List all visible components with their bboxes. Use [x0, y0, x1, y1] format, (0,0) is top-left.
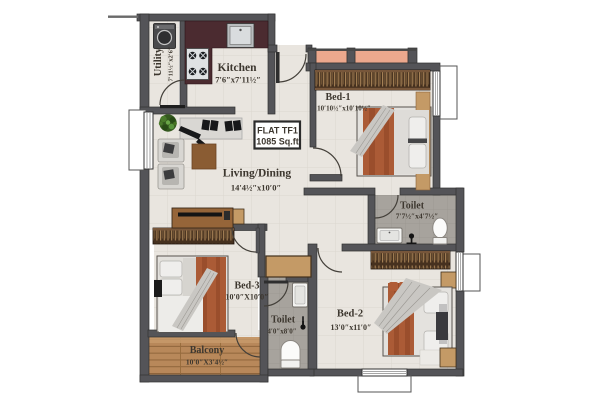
svg-text:Bed-2: Bed-2	[337, 309, 363, 320]
svg-text:7′7½″x4′7½″: 7′7½″x4′7½″	[396, 212, 439, 221]
svg-text:Toilet: Toilet	[271, 315, 296, 326]
svg-text:10′0″X3′4½″: 10′0″X3′4½″	[186, 358, 228, 367]
svg-text:Toilet: Toilet	[400, 201, 425, 212]
svg-text:1085 Sq.ft: 1085 Sq.ft	[256, 137, 299, 147]
svg-text:4′0″x8′0″: 4′0″x8′0″	[267, 328, 296, 336]
svg-text:Kitchen: Kitchen	[218, 62, 258, 74]
svg-text:FLAT TF1: FLAT TF1	[257, 126, 298, 136]
svg-text:10′0″X10′0″: 10′0″X10′0″	[225, 293, 268, 302]
svg-text:Utility: Utility	[153, 47, 164, 76]
svg-text:Bed-3: Bed-3	[235, 281, 260, 292]
svg-text:13′0″x11′0″: 13′0″x11′0″	[331, 323, 372, 332]
svg-text:14′4½″x10′0″: 14′4½″x10′0″	[231, 183, 281, 193]
svg-text:7′11½″x2′6″: 7′11½″x2′6″	[168, 47, 175, 82]
svg-text:7′6″x7′11½″: 7′6″x7′11½″	[215, 75, 261, 85]
svg-text:Balcony: Balcony	[190, 345, 224, 356]
svg-text:Bed-1: Bed-1	[326, 92, 351, 103]
svg-text:Living/Dining: Living/Dining	[223, 168, 292, 180]
svg-text:10′10½″x10′10½″: 10′10½″x10′10½″	[317, 105, 371, 113]
